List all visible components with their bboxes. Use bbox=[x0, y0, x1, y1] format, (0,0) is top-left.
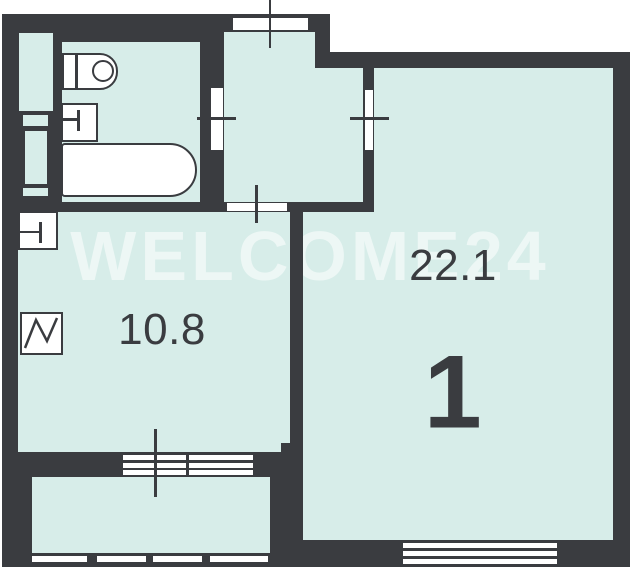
balcony-door-window bbox=[189, 455, 253, 460]
wall-segment bbox=[290, 212, 303, 452]
living-room-window bbox=[403, 551, 557, 556]
shaft-opening bbox=[25, 131, 47, 184]
living-room-door-opening bbox=[365, 90, 373, 150]
door-axis-line bbox=[350, 117, 389, 120]
door-axis-line bbox=[154, 429, 157, 497]
hall-floor bbox=[224, 32, 315, 202]
balcony-glazing-segment bbox=[32, 556, 87, 562]
floor-plan: WELCOME24 10.8 22.1 1 bbox=[0, 0, 634, 568]
shaft-opening bbox=[23, 188, 48, 196]
shaft-opening bbox=[23, 115, 48, 126]
toilet-symbol bbox=[62, 53, 118, 90]
room-number-label: 1 bbox=[424, 334, 482, 453]
kitchen-sink-tap bbox=[39, 222, 42, 243]
living-room-window bbox=[403, 543, 557, 548]
wall-segment bbox=[281, 443, 290, 452]
balcony-floor bbox=[32, 477, 270, 553]
balcony-door-window bbox=[189, 463, 253, 468]
balcony-glazing-segment bbox=[97, 556, 146, 562]
living-room-area-label: 22.1 bbox=[409, 241, 497, 291]
kitchen-area-label: 10.8 bbox=[118, 305, 206, 355]
living-room-floor bbox=[374, 68, 613, 540]
vent-shaft-symbol bbox=[20, 312, 63, 355]
toilet-bowl-circle bbox=[92, 60, 114, 82]
balcony-door-window bbox=[189, 470, 253, 475]
living-room-window bbox=[403, 559, 557, 564]
shaft-opening bbox=[19, 33, 53, 111]
hall-floor bbox=[315, 68, 363, 202]
washbasin-symbol bbox=[61, 103, 98, 142]
balcony-glazing-segment bbox=[153, 556, 202, 562]
bathtub-symbol bbox=[61, 143, 197, 197]
door-axis-line bbox=[269, 0, 272, 48]
toilet-tank-divider bbox=[75, 55, 78, 88]
vent-zigzag-icon bbox=[22, 314, 60, 352]
washbasin-tap bbox=[77, 110, 80, 131]
balcony-glazing-segment bbox=[210, 556, 268, 562]
kitchen-sink-tap bbox=[20, 231, 39, 234]
outside-area bbox=[330, 0, 634, 52]
kitchen-sink-symbol bbox=[18, 211, 58, 250]
door-axis-line bbox=[197, 117, 236, 120]
